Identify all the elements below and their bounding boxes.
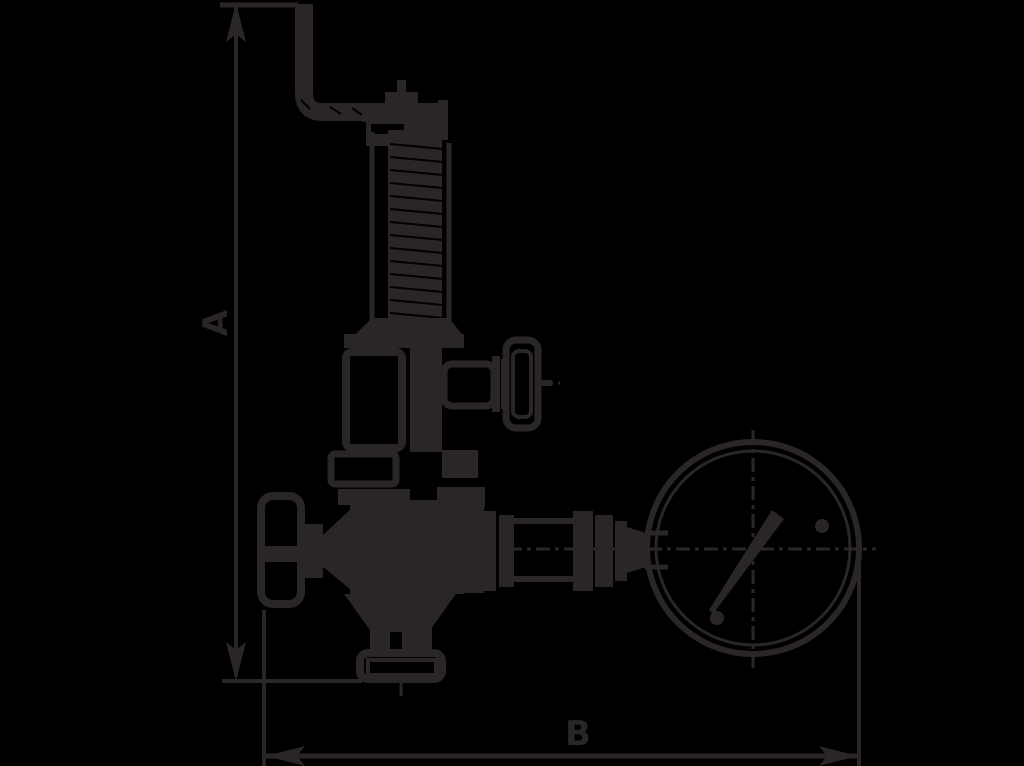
bottom-flange (360, 653, 442, 679)
body-shoulder-right (437, 487, 485, 507)
gauge-screw-right (815, 519, 829, 533)
gauge-needle (709, 510, 784, 614)
cap-plate (362, 104, 438, 122)
outlet-pipe (483, 511, 668, 591)
side-handwheel (506, 340, 538, 428)
side-valve-handwheel (444, 340, 552, 428)
dim-a-label: A (196, 309, 236, 336)
cap-nub (385, 92, 418, 106)
stem-tube (410, 348, 442, 452)
main-handwheel-hub (263, 546, 299, 562)
gauge-screw-left (710, 611, 724, 625)
side-valve-ring-1 (492, 356, 500, 412)
pipe-fitting-3 (615, 521, 627, 581)
union-left-block (331, 454, 396, 484)
valve-dimensional-drawing: A B (0, 0, 1024, 766)
body-outlet-flank (462, 505, 484, 593)
spring-bonnet (331, 130, 478, 484)
body-taper (344, 594, 456, 630)
pipe-nut-2 (499, 515, 514, 587)
pipe-fitting-2 (595, 515, 613, 587)
union-right-block (442, 450, 478, 478)
body-block (350, 500, 464, 594)
pipe-nut-1 (483, 511, 496, 591)
main-valve-stem (301, 524, 323, 578)
spring-housing (346, 352, 402, 448)
dim-b-label: B (565, 714, 591, 754)
bonnet-collar (344, 334, 464, 348)
pipe-fitting-1 (573, 511, 593, 591)
valve-body (322, 487, 485, 652)
side-valve-body (444, 364, 494, 406)
cap-pin (397, 80, 406, 94)
bonnet-flare (356, 318, 462, 334)
main-handwheel (261, 496, 323, 604)
